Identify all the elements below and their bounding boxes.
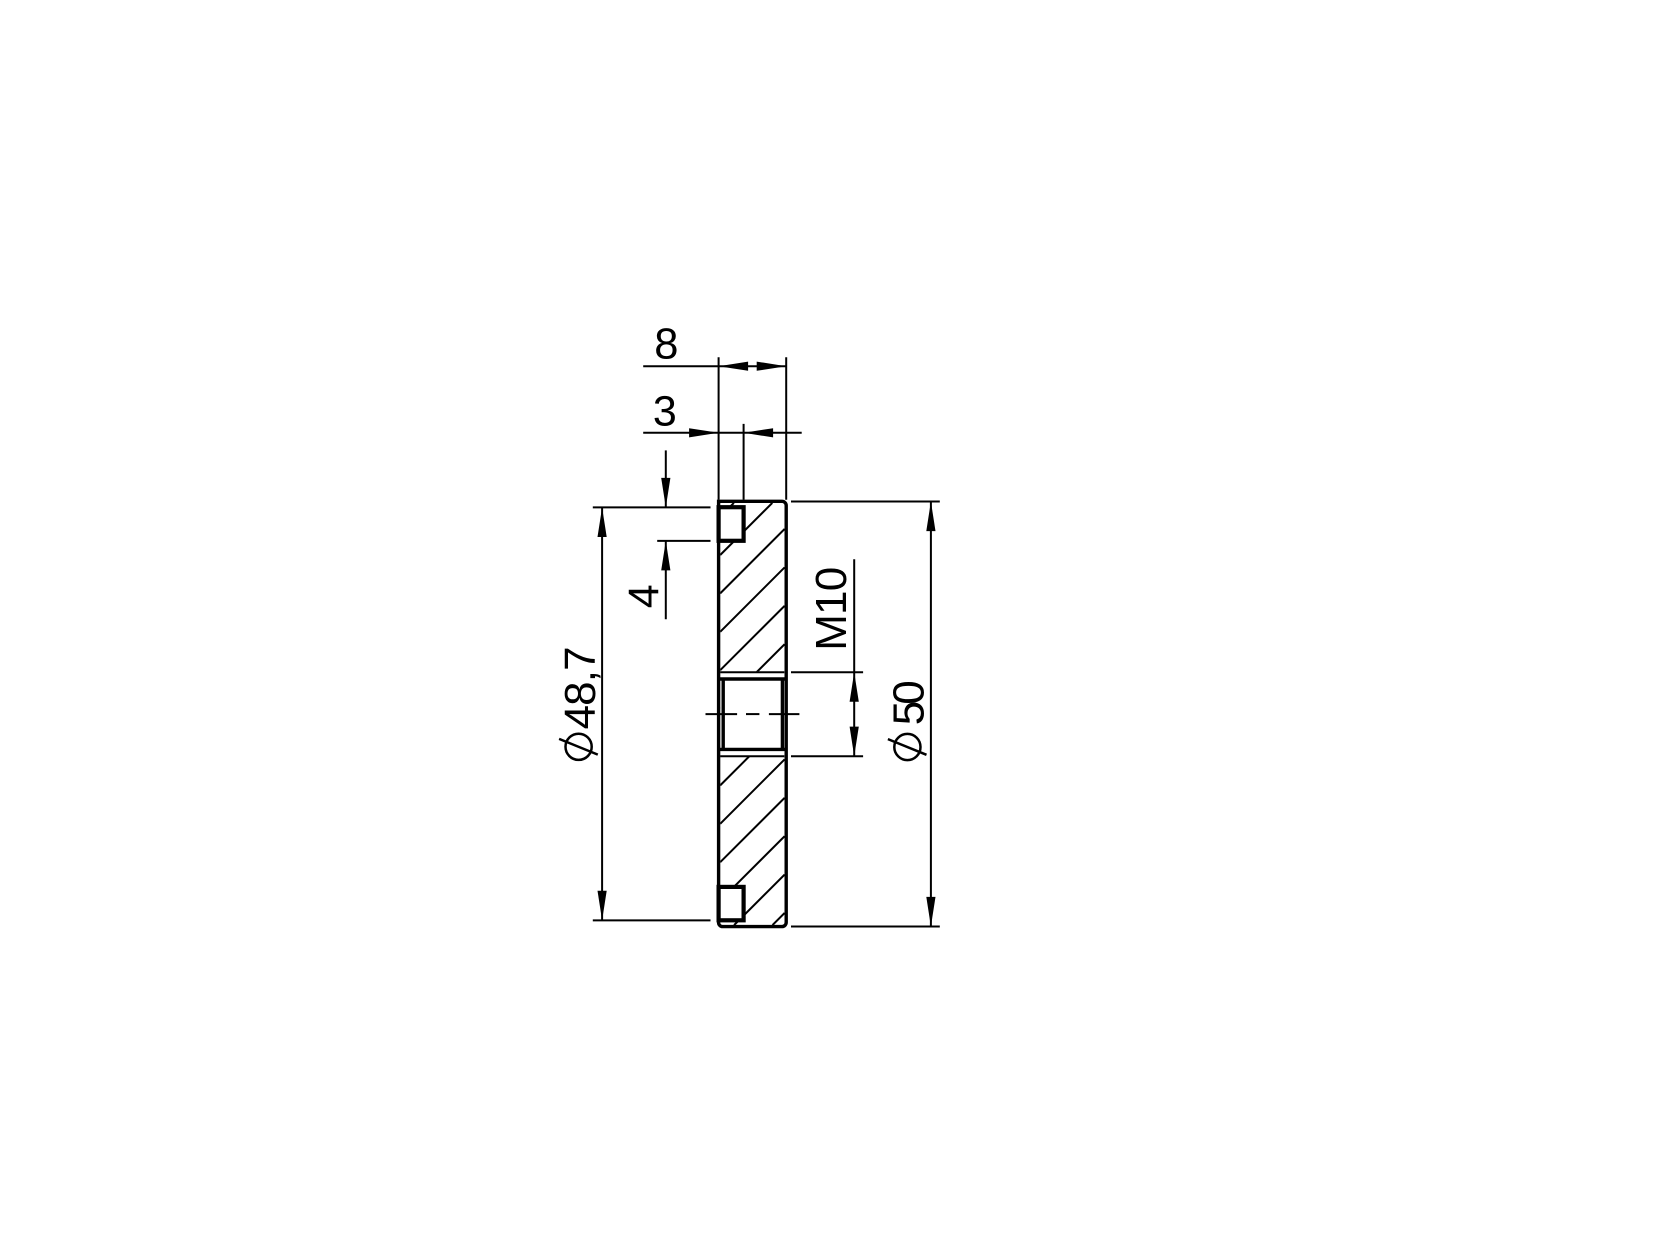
- svg-text:50: 50: [885, 680, 934, 725]
- svg-text:8: 8: [654, 320, 678, 368]
- svg-text:4: 4: [620, 584, 668, 608]
- svg-text:3: 3: [653, 387, 677, 435]
- svg-text:M10: M10: [807, 567, 856, 651]
- svg-text:48,7: 48,7: [556, 646, 605, 729]
